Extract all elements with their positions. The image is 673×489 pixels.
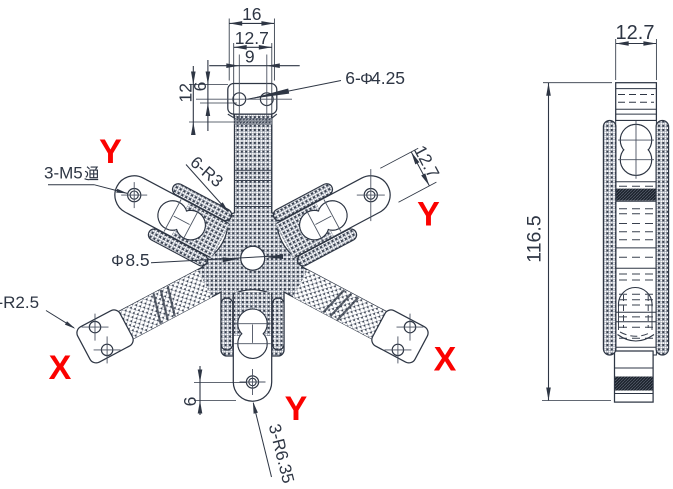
svg-text:6-: 6- <box>345 68 361 88</box>
svg-text:X: X <box>49 349 72 387</box>
svg-text:16: 16 <box>242 4 261 24</box>
svg-text:116.5: 116.5 <box>524 215 546 263</box>
svg-text:Φ: Φ <box>111 253 124 270</box>
svg-text:8.5: 8.5 <box>125 250 149 270</box>
svg-text:X: X <box>434 341 457 379</box>
svg-text:4.25: 4.25 <box>371 68 405 88</box>
svg-text:12.7: 12.7 <box>616 22 655 44</box>
svg-text:Y: Y <box>285 390 308 428</box>
svg-text:Y: Y <box>99 133 122 171</box>
svg-text:9: 9 <box>245 47 255 67</box>
svg-text:12.7: 12.7 <box>235 28 269 48</box>
svg-text:6: 6 <box>180 397 200 407</box>
svg-text:6-R2.5: 6-R2.5 <box>0 293 39 312</box>
svg-text:3-M5: 3-M5 <box>44 164 83 183</box>
svg-text:Y: Y <box>417 196 440 234</box>
svg-text:6: 6 <box>190 82 210 92</box>
